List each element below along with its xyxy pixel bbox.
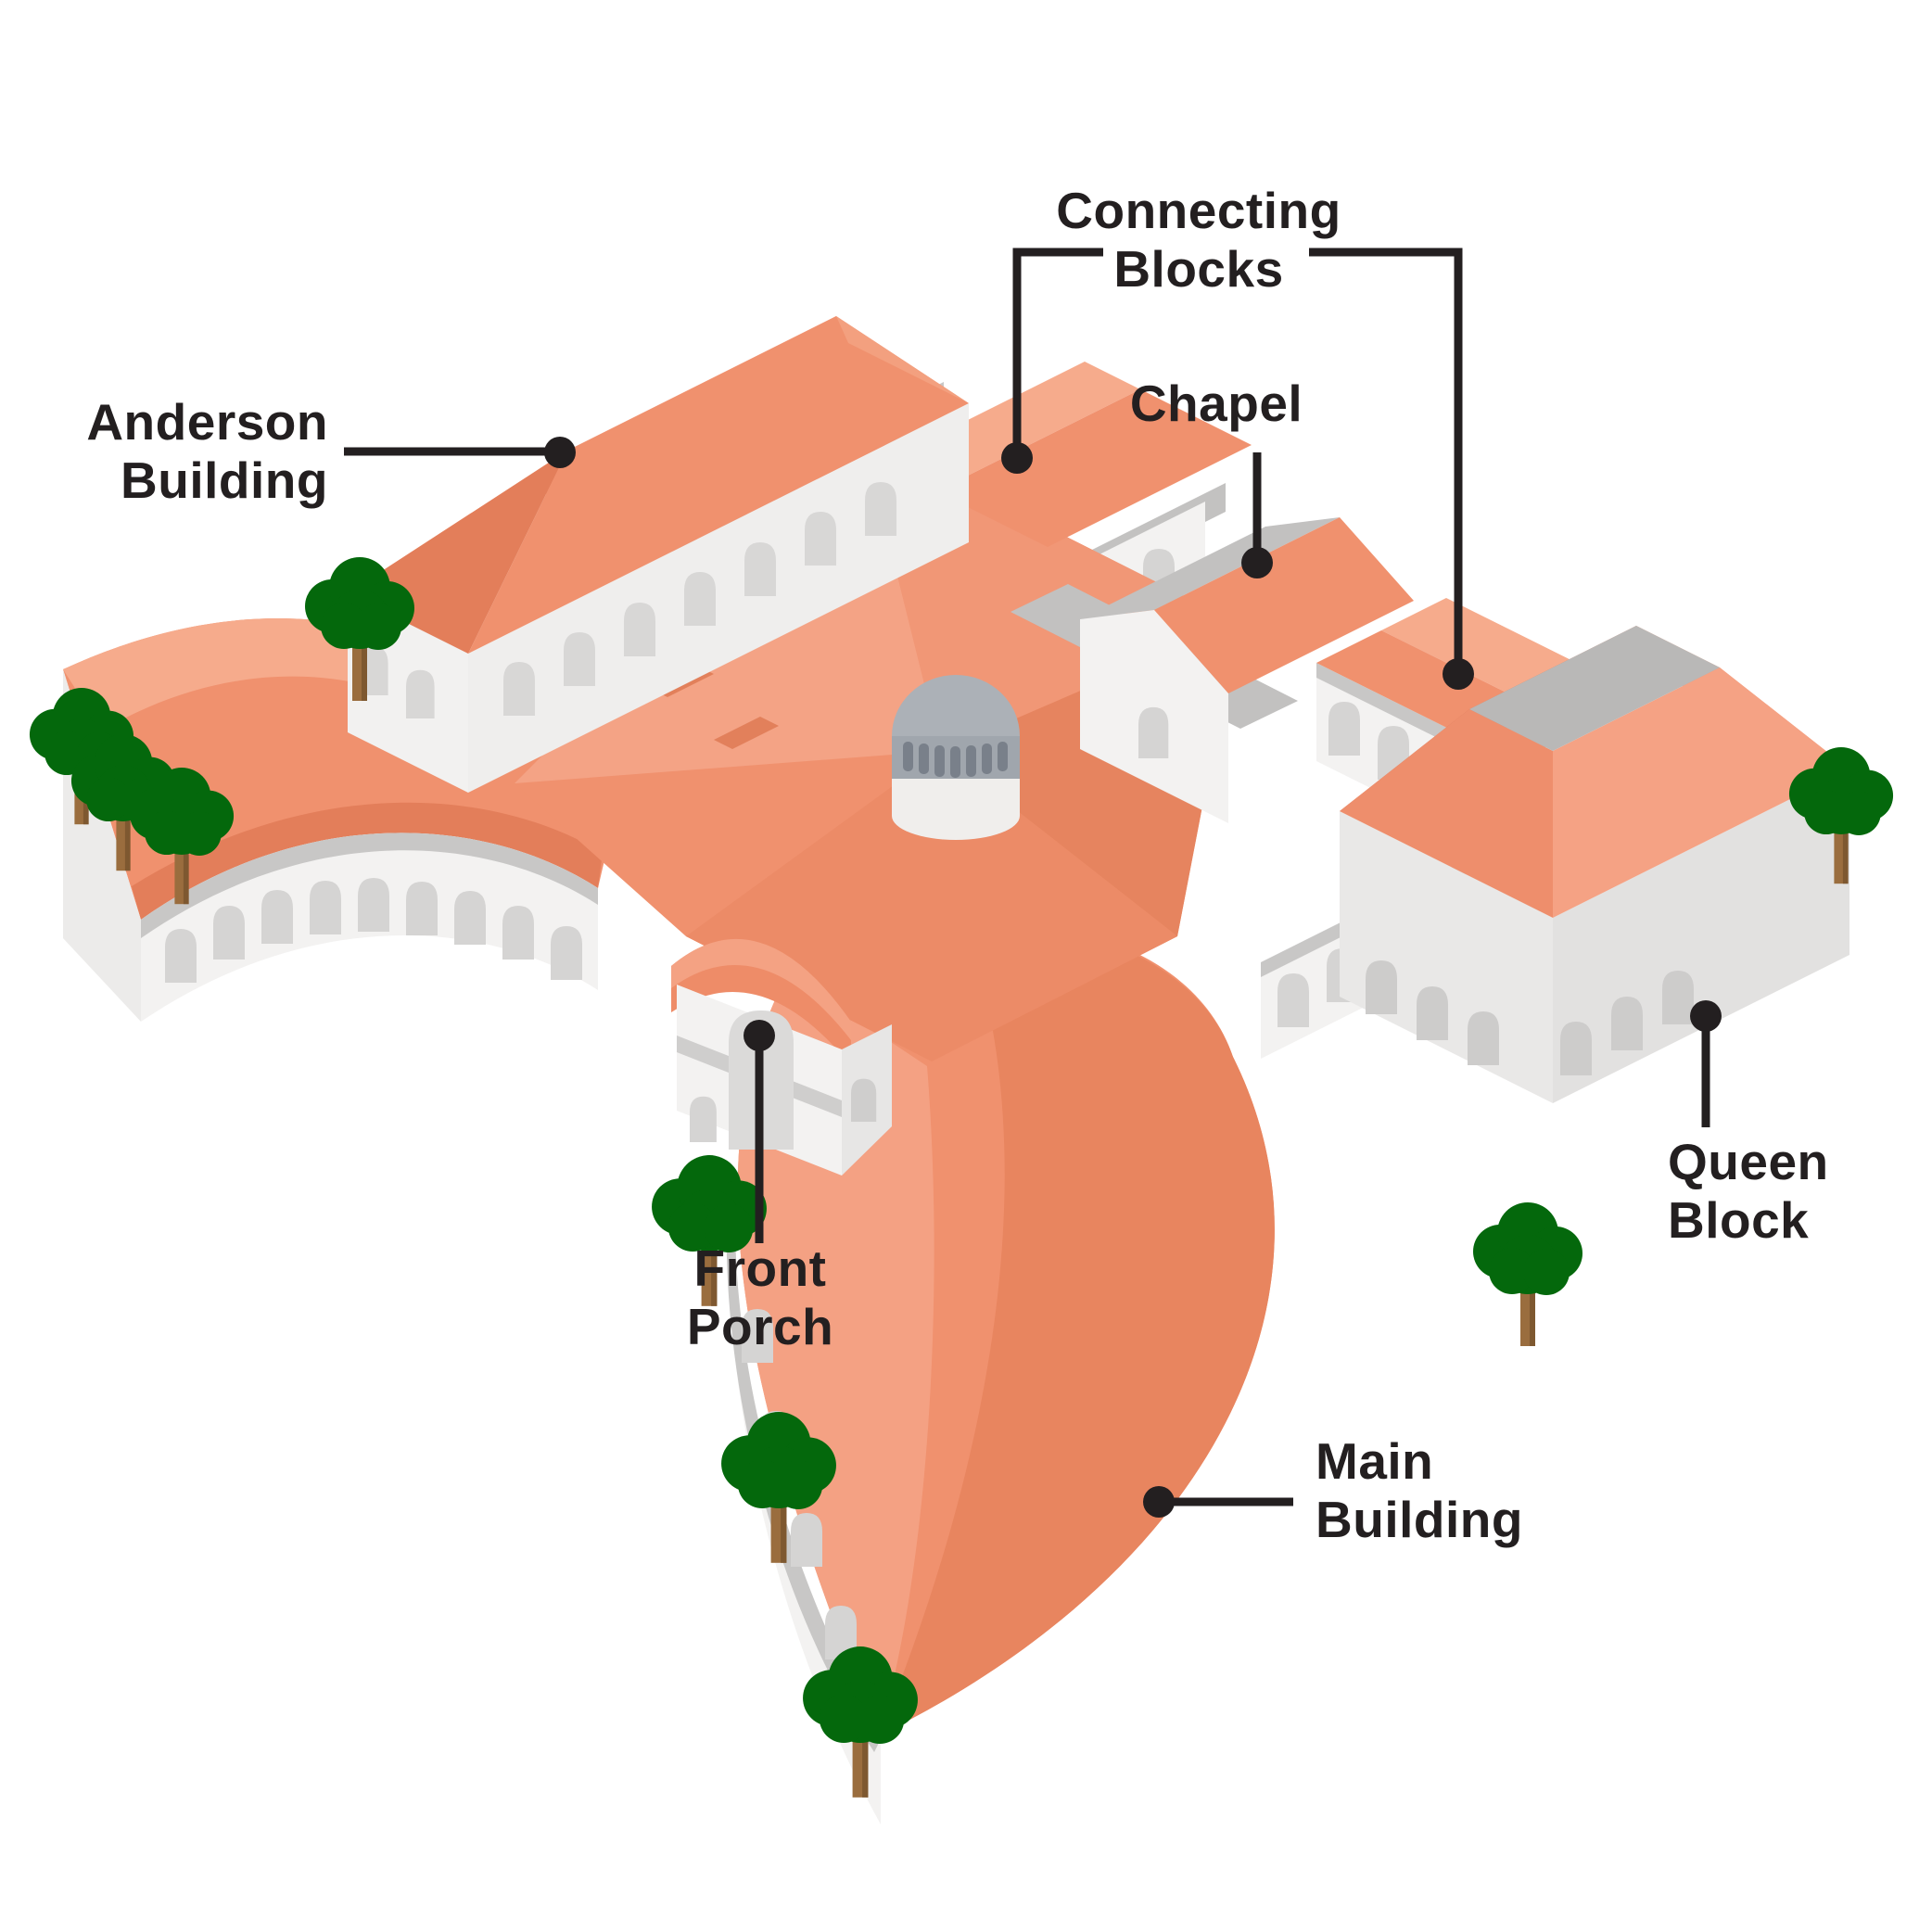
- label-connecting-blocks: Connecting Blocks: [985, 182, 1412, 299]
- leader-dot-front-porch: [744, 1020, 775, 1051]
- label-line: Building: [1316, 1491, 1714, 1549]
- leader-dot-chapel: [1241, 547, 1273, 578]
- leader-dot-main-building: [1143, 1486, 1175, 1518]
- label-line: Anderson: [26, 393, 328, 451]
- leader-dot-connecting-blocks: [1443, 658, 1474, 690]
- label-chapel: Chapel: [1031, 375, 1402, 433]
- label-line: Front: [573, 1239, 947, 1298]
- label-anderson-building: Anderson Building: [26, 393, 328, 510]
- label-front-porch: Front Porch: [573, 1239, 947, 1356]
- leader-dot-anderson-building: [544, 437, 576, 468]
- label-line: Building: [26, 451, 328, 510]
- label-line: Connecting: [985, 182, 1412, 240]
- label-line: Queen: [1668, 1133, 1932, 1191]
- leader-dot-queen-block: [1690, 1000, 1722, 1032]
- label-main-building: Main Building: [1316, 1432, 1714, 1549]
- leader-dot-connecting-blocks: [1001, 442, 1033, 474]
- tree-icon: [1473, 1202, 1582, 1346]
- label-line: Chapel: [1031, 375, 1402, 433]
- dome-graphic: [892, 675, 1020, 840]
- diagram-canvas: Connecting Blocks Anderson Building Chap…: [0, 0, 1932, 1932]
- label-line: Block: [1668, 1191, 1932, 1250]
- campus-illustration: [0, 0, 1932, 1932]
- label-line: Porch: [573, 1298, 947, 1356]
- label-line: Main: [1316, 1432, 1714, 1491]
- label-line: Blocks: [985, 240, 1412, 299]
- label-queen-block: Queen Block: [1668, 1133, 1932, 1250]
